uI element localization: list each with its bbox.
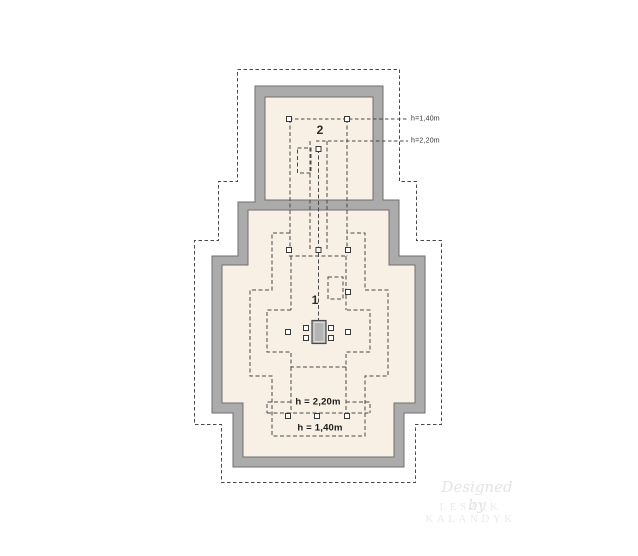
leader-label-h140: h=1,40m	[411, 116, 440, 123]
room1-number: 1	[312, 293, 319, 307]
floor-plan-drawing	[0, 0, 638, 556]
dim-label-h220: h = 2,20m	[295, 397, 340, 408]
watermark-author: LESZEK KALANDYK	[398, 501, 543, 525]
room2-number: 2	[317, 123, 324, 137]
chimney	[312, 321, 326, 344]
leader-label-h220: h=2,20m	[411, 138, 440, 145]
floor-plan-canvas: 2 1 h=1,40m h=2,20m h = 2,20m h = 1,40m …	[0, 0, 638, 556]
dim-label-h140: h = 1,40m	[297, 423, 342, 434]
